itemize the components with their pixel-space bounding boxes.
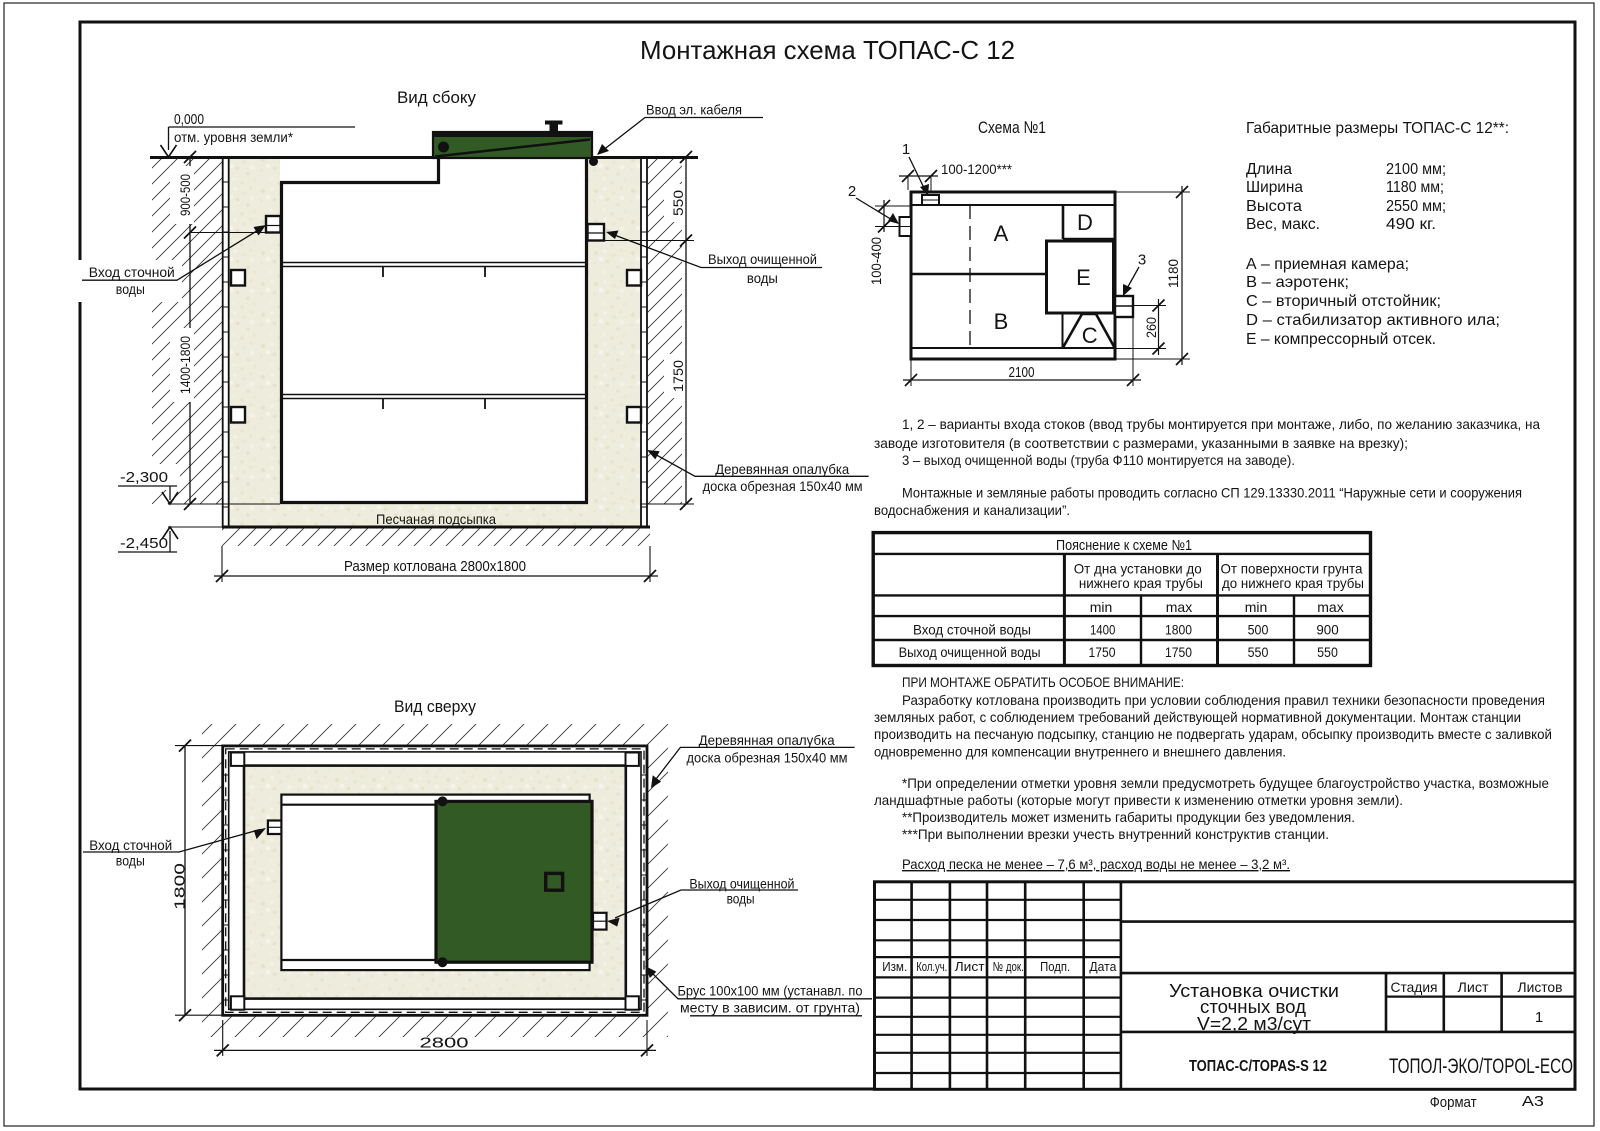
svg-text:max: max (1317, 599, 1343, 615)
svg-text:воды: воды (747, 270, 778, 286)
svg-text:Брус 100х100 мм (устанавл. по: Брус 100х100 мм (устанавл. по (678, 983, 863, 999)
svg-text:1800: 1800 (1165, 622, 1192, 638)
svg-text:1: 1 (902, 141, 910, 158)
svg-text:Вид сверху: Вид сверху (394, 697, 476, 716)
svg-text:*При определении отметки уровн: *При определении отметки уровня земли пр… (902, 775, 1549, 791)
svg-text:Ввод эл. кабеля: Ввод эл. кабеля (646, 102, 742, 118)
svg-text:Листов: Листов (1518, 979, 1563, 995)
svg-text:1180 мм;: 1180 мм; (1386, 179, 1444, 196)
svg-text:2: 2 (848, 183, 856, 200)
svg-text:D – стабилизатор активного ила: D – стабилизатор активного ила; (1246, 312, 1500, 329)
svg-text:Габаритные размеры ТОПАС-С 12*: Габаритные размеры ТОПАС-С 12**: (1246, 120, 1509, 137)
svg-text:одновременно для компенсации в: одновременно для компенсации внутреннего… (874, 744, 1286, 760)
svg-text:земляных работ, с соблюдением: земляных работ, с соблюдением требований… (874, 709, 1521, 725)
svg-text:100-400: 100-400 (868, 237, 884, 285)
svg-text:-2,450: -2,450 (120, 535, 168, 552)
svg-text:Формат: Формат (1430, 1094, 1477, 1111)
svg-text:490 кг.: 490 кг. (1386, 216, 1436, 233)
svg-text:А – приемная камера;: А – приемная камера; (1246, 256, 1409, 273)
svg-text:№ док.: № док. (993, 959, 1024, 974)
svg-text:месту в зависим. от грунта): месту в зависим. от грунта) (680, 1000, 860, 1016)
svg-text:min: min (1245, 599, 1268, 615)
svg-text:нижнего края трубы: нижнего края трубы (1079, 575, 1203, 591)
svg-text:Размер котлована 2800х1800: Размер котлована 2800х1800 (344, 558, 526, 575)
svg-text:Песчаная подсыпка: Песчаная подсыпка (376, 511, 496, 527)
svg-text:производить на песчаную подсып: производить на песчаную подсыпку, станци… (874, 726, 1552, 742)
svg-text:1400-1800: 1400-1800 (177, 336, 193, 394)
svg-text:Е – компрессорный отсек.: Е – компрессорный отсек. (1246, 331, 1436, 348)
svg-text:1750: 1750 (1165, 644, 1192, 660)
svg-text:до нижнего края трубы: до нижнего края трубы (1222, 575, 1364, 591)
svg-text:воды: воды (727, 891, 755, 907)
svg-text:Схема №1: Схема №1 (978, 118, 1046, 137)
svg-text:min: min (1090, 599, 1113, 615)
svg-text:Ширина: Ширина (1246, 179, 1303, 196)
svg-text:1180: 1180 (1165, 259, 1181, 288)
svg-text:3: 3 (1138, 252, 1146, 269)
svg-text:ТОПОЛ-ЭКО/TOPOL-ECO: ТОПОЛ-ЭКО/TOPOL-ECO (1389, 1055, 1573, 1078)
svg-text:А3: А3 (1522, 1093, 1544, 1110)
svg-text:***При выполнении врезки учест: ***При выполнении врезки учесть внутренн… (902, 826, 1329, 842)
svg-text:воды: воды (116, 853, 145, 869)
svg-text:Лист: Лист (1458, 979, 1490, 995)
svg-text:Деревянная опалубка: Деревянная опалубка (699, 732, 835, 748)
svg-text:С – вторичный отстойник;: С – вторичный отстойник; (1246, 293, 1441, 310)
svg-text:0,000: 0,000 (174, 111, 204, 128)
svg-text:1800: 1800 (172, 863, 189, 910)
svg-text:2100: 2100 (1009, 364, 1035, 381)
svg-text:1400: 1400 (1090, 622, 1116, 638)
svg-text:Изм.: Изм. (882, 959, 907, 974)
svg-text:C: C (1082, 323, 1098, 348)
svg-text:-2,300: -2,300 (120, 469, 168, 486)
svg-text:V=2,2 м3/сут: V=2,2 м3/сут (1197, 1014, 1311, 1034)
svg-text:водоснабжения и канализации”.: водоснабжения и канализации”. (874, 502, 1070, 518)
svg-text:доска обрезная 150х40 мм: доска обрезная 150х40 мм (687, 750, 848, 766)
svg-text:1750: 1750 (670, 360, 686, 392)
svg-text:550: 550 (1317, 644, 1338, 660)
svg-text:260: 260 (1143, 317, 1159, 338)
svg-text:550: 550 (1248, 644, 1269, 660)
svg-text:Кол.уч.: Кол.уч. (916, 959, 947, 974)
svg-text:заводе изготовителя (в соответ: заводе изготовителя (в соответствии с ра… (874, 435, 1408, 451)
svg-text:Деревянная опалубка: Деревянная опалубка (715, 461, 849, 477)
svg-text:900-500: 900-500 (177, 174, 193, 216)
svg-text:max: max (1166, 599, 1192, 615)
svg-text:D: D (1077, 210, 1093, 235)
svg-text:Вид сбоку: Вид сбоку (397, 88, 476, 107)
svg-text:**Производитель может изменить: **Производитель может изменить габариты … (902, 809, 1355, 825)
svg-text:B: B (994, 309, 1009, 334)
svg-text:В – аэротенк;: В – аэротенк; (1246, 274, 1349, 291)
svg-text:Монтажная схема ТОПАС-С 12: Монтажная схема ТОПАС-С 12 (640, 35, 1015, 65)
svg-text:Выход очищенной воды: Выход очищенной воды (899, 644, 1041, 660)
svg-text:Вход сточной: Вход сточной (89, 837, 172, 853)
svg-text:Расход песка не менее – 7,6 м³: Расход песка не менее – 7,6 м³, расход в… (902, 856, 1290, 872)
svg-text:Вес, макс.: Вес, макс. (1246, 216, 1320, 233)
svg-text:E: E (1076, 265, 1091, 290)
svg-text:Выход очищенной: Выход очищенной (708, 251, 817, 267)
svg-text:Вход сточной: Вход сточной (89, 264, 175, 280)
svg-text:ПРИ МОНТАЖЕ ОБРАТИТЬ ОСОБОЕ ВН: ПРИ МОНТАЖЕ ОБРАТИТЬ ОСОБОЕ ВНИМАНИЕ: (902, 674, 1184, 690)
svg-text:Выход очищенной: Выход очищенной (689, 876, 794, 892)
svg-text:отм. уровня земли*: отм. уровня земли* (174, 129, 294, 145)
svg-text:1750: 1750 (1089, 644, 1116, 660)
svg-text:Длина: Длина (1246, 161, 1292, 178)
svg-text:Подп.: Подп. (1040, 959, 1070, 974)
svg-text:воды: воды (116, 281, 145, 297)
svg-text:2800: 2800 (420, 1035, 469, 1052)
svg-text:1, 2 – варианты входа стоков: 1, 2 – варианты входа стоков (ввод трубы… (902, 416, 1540, 432)
svg-text:Лист: Лист (955, 959, 985, 974)
svg-text:Дата: Дата (1089, 959, 1117, 974)
svg-text:ТОПАС-С/TOPAS-S 12: ТОПАС-С/TOPAS-S 12 (1189, 1058, 1327, 1075)
svg-text:2550 мм;: 2550 мм; (1386, 198, 1446, 215)
svg-text:100-1200***: 100-1200*** (941, 161, 1013, 177)
svg-text:Высота: Высота (1246, 198, 1302, 215)
svg-text:A: A (994, 221, 1009, 246)
svg-text:2100 мм;: 2100 мм; (1386, 161, 1446, 178)
svg-text:Стадия: Стадия (1391, 979, 1438, 995)
svg-text:доска обрезная 150х40 мм: доска обрезная 150х40 мм (703, 478, 863, 494)
svg-text:Вход сточной воды: Вход сточной воды (913, 622, 1031, 638)
svg-text:3 – выход очищенной воды (труб: 3 – выход очищенной воды (труба Ф110 мон… (902, 452, 1295, 468)
svg-text:Разработку котлована производи: Разработку котлована производить при усл… (902, 692, 1545, 708)
svg-text:ландшафтные работы (которые мо: ландшафтные работы (которые могут привес… (874, 792, 1403, 808)
svg-text:Монтажные и земляные работы пр: Монтажные и земляные работы проводить со… (902, 485, 1522, 501)
svg-text:900: 900 (1316, 622, 1339, 638)
svg-text:Пояснение к схеме №1: Пояснение к схеме №1 (1056, 538, 1192, 554)
svg-text:550: 550 (670, 190, 686, 216)
svg-text:500: 500 (1248, 622, 1269, 638)
svg-text:1: 1 (1535, 1009, 1543, 1026)
